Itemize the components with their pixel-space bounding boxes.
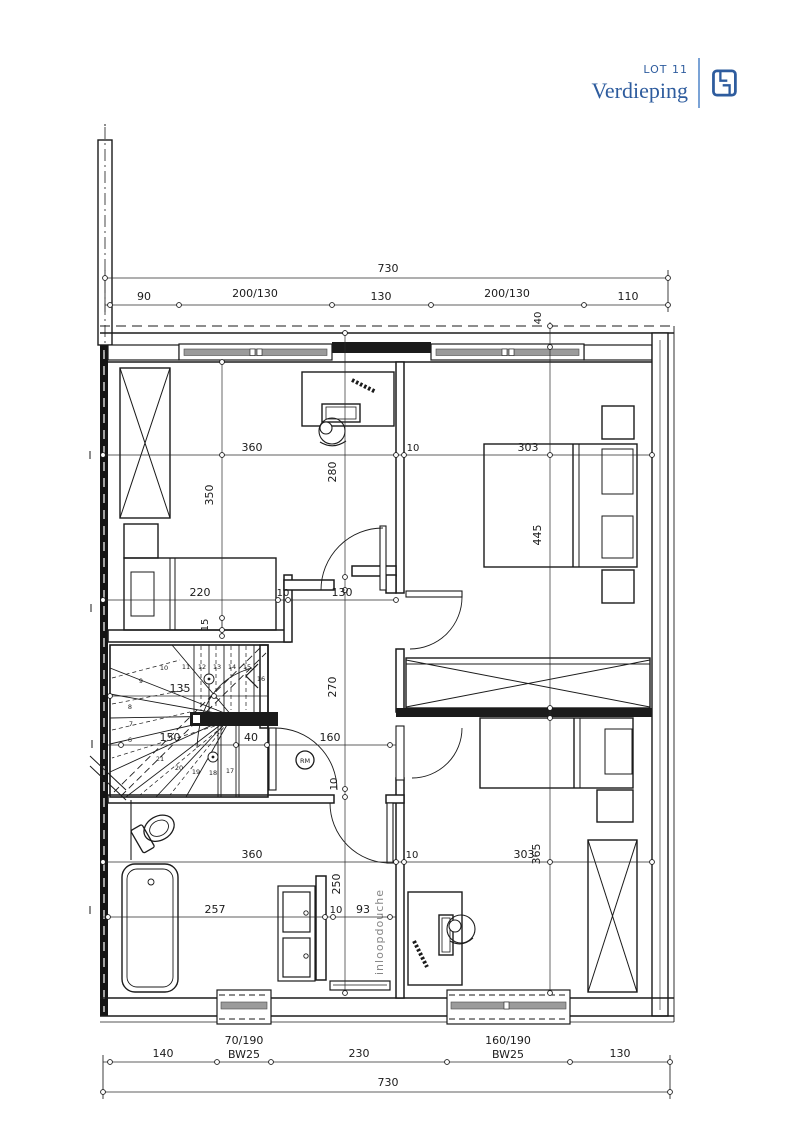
bed2 xyxy=(484,444,637,567)
dim-room1-depth: 350 xyxy=(203,485,216,506)
shower-label: inloopdouche xyxy=(373,889,386,975)
door-bathroom xyxy=(330,803,393,863)
right-facade-wall xyxy=(652,326,674,1022)
tread-17: 17 xyxy=(226,767,234,775)
tread-8: 8 xyxy=(128,703,132,711)
window-top-left xyxy=(179,344,332,360)
dim-bottom-window2-code: BW25 xyxy=(492,1048,524,1061)
staircase: 6 7 8 9 10 11 12 13 14 15 16 17 18 19 20… xyxy=(90,645,278,800)
wall-pier xyxy=(332,342,431,353)
dim-wall-10c: 10 xyxy=(406,850,419,861)
dim-hall-depth: 270 xyxy=(326,677,339,698)
dim-top-window1: 200/130 xyxy=(232,287,278,300)
tread-19: 19 xyxy=(192,768,200,776)
nightstand2b xyxy=(602,570,634,603)
dim-hall-160: 160 xyxy=(320,731,341,744)
tread-20: 20 xyxy=(175,764,183,772)
dim-top-90: 90 xyxy=(137,290,151,303)
desk1-object xyxy=(352,380,376,392)
tread-11: 11 xyxy=(182,663,190,671)
toilet xyxy=(131,810,180,854)
desk3-object xyxy=(414,941,427,967)
dim-room2-depth: 445 xyxy=(531,525,544,546)
tread-14: 14 xyxy=(228,663,236,671)
dim-room3-depth: 365 xyxy=(530,844,543,865)
page-title: Verdieping xyxy=(591,78,688,104)
bathroom-fixtures xyxy=(122,800,390,992)
window-top-right xyxy=(431,344,584,360)
tread-13: 13 xyxy=(213,663,221,671)
shower-drain xyxy=(330,981,390,990)
dim-wall-10a: 10 xyxy=(407,443,420,454)
dim-bed-gap: 15 xyxy=(200,619,211,632)
tread-10: 10 xyxy=(160,664,168,672)
dim-stair-150: 150 xyxy=(160,731,181,744)
blueprint-icon xyxy=(710,68,740,98)
wardrobe3 xyxy=(588,840,637,992)
dim-room1-width: 360 xyxy=(242,441,263,454)
tread-16: 16 xyxy=(257,675,265,683)
dim-wall-10b: 10 xyxy=(277,588,290,599)
dim-top-130: 130 xyxy=(371,290,392,303)
dim-hall-gap: 10 xyxy=(329,778,340,791)
window-bottom-left xyxy=(217,990,271,1024)
tread-9: 9 xyxy=(139,677,143,685)
nightstand2a xyxy=(602,406,634,439)
chair3 xyxy=(447,915,475,944)
title-divider xyxy=(698,58,700,108)
dim-top-offset: 40 xyxy=(533,312,544,325)
dim-landing-40: 40 xyxy=(244,731,258,744)
dim-room2-width: 303 xyxy=(518,441,539,454)
dim-stair-width: 135 xyxy=(170,682,191,695)
tread-12: 12 xyxy=(198,663,206,671)
bottom-facade-wall xyxy=(100,990,674,1024)
dim-top-window2: 200/130 xyxy=(484,287,530,300)
dim-bath-257: 257 xyxy=(205,903,226,916)
smoke-detector-label: RM xyxy=(300,757,310,765)
dim-bottom-window1-code: BW25 xyxy=(228,1048,260,1061)
dim-bath-width: 360 xyxy=(242,848,263,861)
door-bedroom2 xyxy=(406,591,462,649)
tread-7: 7 xyxy=(129,720,133,728)
dim-shower-93: 93 xyxy=(356,903,370,916)
floorplan-drawing: 6 7 8 9 10 11 12 13 14 15 16 17 18 19 20… xyxy=(0,0,800,1132)
tread-18: 18 xyxy=(209,769,217,777)
bed3 xyxy=(480,718,633,788)
tread-21: 21 xyxy=(156,755,164,763)
door-bedroom3 xyxy=(396,726,462,780)
nightstand3 xyxy=(597,790,633,822)
party-wall-left xyxy=(98,124,112,1016)
wardrobe1 xyxy=(120,368,170,518)
dim-bed1: 220 xyxy=(190,586,211,599)
reference-ticks-left xyxy=(90,451,92,914)
stair-landing-rail xyxy=(190,712,278,726)
wall-bedroom-divider xyxy=(396,708,652,717)
dim-bottom-window2-size: 160/190 xyxy=(485,1034,531,1047)
dim-room1-inner: 280 xyxy=(326,462,339,483)
tread-15: 15 xyxy=(243,663,251,671)
dim-top-total: 730 xyxy=(378,262,399,275)
dim-shower-len: 250 xyxy=(330,874,343,895)
tread-6: 6 xyxy=(128,736,132,744)
bathtub xyxy=(122,864,178,992)
vanity xyxy=(278,886,315,981)
dim-bath-10: 10 xyxy=(330,905,343,916)
title-block: LOT 11 Verdieping xyxy=(591,58,740,108)
dim-bottom-130: 130 xyxy=(610,1047,631,1060)
dim-bottom-window1-size: 70/190 xyxy=(225,1034,264,1047)
smoke-detector: RM xyxy=(296,751,314,769)
nightstand1 xyxy=(124,524,158,558)
dim-bottom-230: 230 xyxy=(349,1047,370,1060)
desk3 xyxy=(408,892,462,985)
bedroom1-furniture xyxy=(120,368,394,630)
floorplan-sheet: LOT 11 Verdieping xyxy=(0,0,800,1132)
top-facade-wall xyxy=(100,326,674,362)
dim-bottom-total: 730 xyxy=(378,1076,399,1089)
wardrobe2 xyxy=(406,658,650,708)
dim-bottom-140: 140 xyxy=(153,1047,174,1060)
lot-label: LOT 11 xyxy=(591,63,688,76)
dim-top-110: 110 xyxy=(618,290,639,303)
desk1 xyxy=(302,372,394,426)
dim-hall-door: 130 xyxy=(332,586,353,599)
